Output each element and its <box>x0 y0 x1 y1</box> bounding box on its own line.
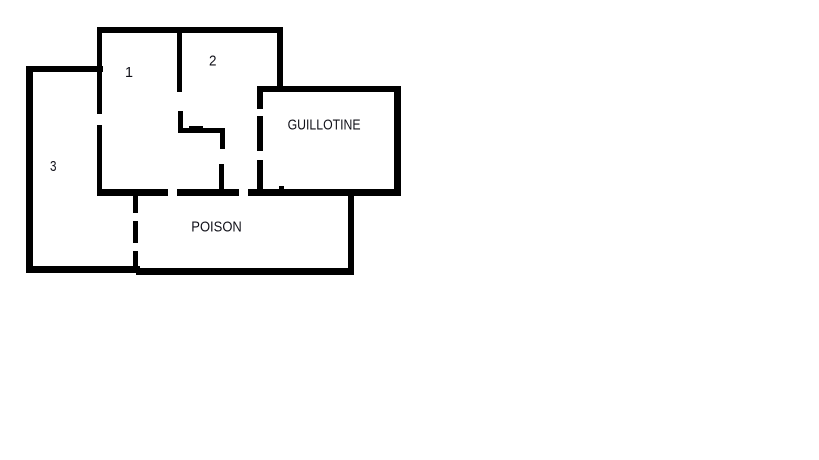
svg-text:3: 3 <box>50 159 57 175</box>
svg-text:2: 2 <box>209 54 217 70</box>
svg-text:GUILLOTINE: GUILLOTINE <box>288 116 361 133</box>
svg-text:POISON: POISON <box>191 218 242 235</box>
svg-text:1: 1 <box>125 64 133 81</box>
